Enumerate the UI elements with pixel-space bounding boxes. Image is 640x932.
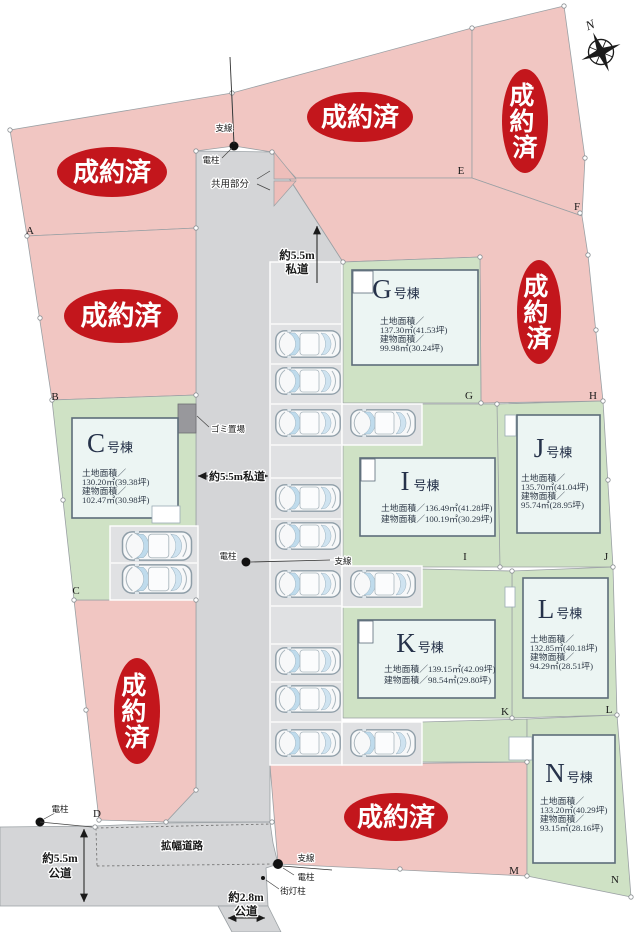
utility-pole-label: 電柱 (202, 155, 220, 165)
corner-letter: J (604, 551, 609, 563)
car-icon (351, 569, 415, 598)
sold-stamp-text: 成約済 (357, 802, 436, 832)
street-light-label: 街灯柱 (280, 886, 306, 896)
lot-suffix: 号棟 (418, 640, 444, 655)
corner-letter: N (611, 874, 619, 886)
site-plan: 成約済 成約済 成約済 成約済 成 約 済 成 約 済 成 約 済 C号棟 G号… (0, 0, 640, 932)
building-i-porch (361, 459, 375, 481)
building-j-porch (505, 415, 516, 436)
road-label: 約5.5m (279, 248, 315, 262)
corner-letter: H (589, 390, 597, 402)
car-icon (276, 521, 340, 550)
building-n-pad (509, 737, 532, 760)
garbage-station-box (178, 404, 196, 433)
area-line: 94.29㎡(28.51坪) (530, 661, 593, 671)
car-icon (123, 563, 192, 594)
guy-wire-label: 支線 (297, 853, 315, 863)
road-label: 私道 (286, 262, 309, 276)
sold-stamp-text-vertical: 成 約 済 (121, 672, 152, 752)
corner-letter: E (458, 165, 465, 177)
lot-suffix: 号棟 (394, 286, 420, 301)
car-icon (276, 728, 340, 757)
lot-letter: J (534, 433, 545, 463)
building-k-porch (359, 621, 373, 643)
utility-pole-dot (273, 859, 283, 869)
lot-letter: G (372, 274, 392, 304)
corner-letter: L (606, 704, 613, 716)
corner-letter: D (93, 808, 101, 820)
sold-stamp-text-vertical: 成 約 済 (509, 82, 540, 162)
corner-letter: C (72, 585, 79, 597)
area-line: 土地面積／139.15㎡(42.09坪) (384, 663, 495, 674)
building-c-pad (152, 506, 180, 523)
car-icon (123, 530, 192, 561)
road-label: 拡幅道路 (161, 839, 203, 852)
lot-suffix: 号棟 (556, 606, 582, 621)
street-light-dot (261, 876, 265, 880)
building-i (360, 458, 495, 536)
stamp-char: 済 (512, 133, 538, 162)
lot-letter: C (87, 428, 105, 458)
pointer-line (266, 880, 279, 889)
building-g-porch (353, 271, 373, 293)
utility-pole-label: 電柱 (51, 804, 69, 814)
corner-letter: K (501, 706, 509, 718)
stamp-char: 約 (523, 298, 548, 327)
car-icon (276, 366, 340, 395)
area-line: 95.74㎡(28.95坪) (521, 500, 584, 510)
compass-icon: N (568, 10, 629, 80)
area-line: 建物面積／100.19㎡(30.29坪) (381, 513, 492, 524)
road-label: 約5.5m (42, 851, 78, 865)
area-line: 建物面積／98.54㎡(29.80坪) (384, 674, 491, 685)
garbage-station-label: ゴミ置場 (211, 424, 246, 434)
sold-stamp-text: 成約済 (81, 300, 163, 331)
car-icon (351, 728, 415, 757)
site-plan-drawing: 成約済 成約済 成約済 成約済 成 約 済 成 約 済 成 約 済 C号棟 G号… (0, 0, 640, 932)
building-k (358, 620, 495, 698)
sold-stamp-text: 成約済 (73, 157, 152, 187)
area-line: 102.47㎡(30.98坪) (82, 495, 150, 505)
guy-wire-label: 支線 (215, 123, 233, 133)
pointer-line (283, 868, 294, 875)
lot-suffix: 号棟 (546, 445, 572, 460)
corner-letter: M (509, 865, 519, 877)
car-icon (351, 408, 415, 437)
road-label: 公道 (235, 904, 258, 918)
compass-north-label: N (582, 16, 598, 34)
road-label: 約5.5m私道 (209, 469, 265, 483)
guy-wire-label: 支線 (334, 556, 352, 566)
area-line: 99.98㎡(30.24坪) (380, 343, 443, 353)
stamp-char: 約 (121, 697, 146, 726)
stamp-char: 成 (523, 273, 548, 301)
sold-stamp-text: 成約済 (321, 102, 400, 132)
car-icon (276, 684, 340, 713)
corner-letter: A (26, 225, 34, 237)
stamp-char: 済 (526, 324, 552, 353)
lot-suffix: 号棟 (567, 770, 593, 785)
utility-pole-label: 電柱 (297, 872, 315, 882)
car-icon (276, 408, 340, 437)
car-icon (276, 329, 340, 358)
area-line: 93.15㎡(28.16坪) (540, 823, 603, 833)
area-line: 土地面積／136.49㎡(41.28坪) (381, 502, 492, 513)
stamp-char: 済 (124, 723, 150, 752)
lot-suffix: 号棟 (413, 478, 439, 493)
corner-letter: I (463, 551, 467, 563)
sold-stamp-text-vertical: 成 約 済 (523, 273, 554, 353)
car-icon (276, 569, 340, 598)
car-icon (276, 646, 340, 675)
lot-suffix: 号棟 (107, 440, 133, 455)
stamp-char: 約 (509, 107, 534, 136)
stamp-char: 成 (509, 82, 534, 110)
utility-pole-dot (242, 558, 251, 567)
lot-letter: I (400, 466, 409, 496)
car-icon (276, 483, 340, 512)
lot-letter: L (538, 594, 555, 624)
corner-letter: G (465, 390, 473, 402)
lot-letter: N (545, 758, 565, 788)
road-label: 公道 (49, 866, 72, 880)
common-area-label: 共用部分 (211, 178, 250, 190)
utility-pole-label: 電柱 (219, 551, 237, 561)
corner-letter: B (51, 391, 58, 403)
road-label: 約2.8m (228, 890, 264, 904)
lot-letter: K (396, 628, 416, 658)
stamp-char: 成 (121, 672, 146, 700)
corner-letter: F (574, 201, 580, 213)
building-l-porch (505, 587, 515, 607)
